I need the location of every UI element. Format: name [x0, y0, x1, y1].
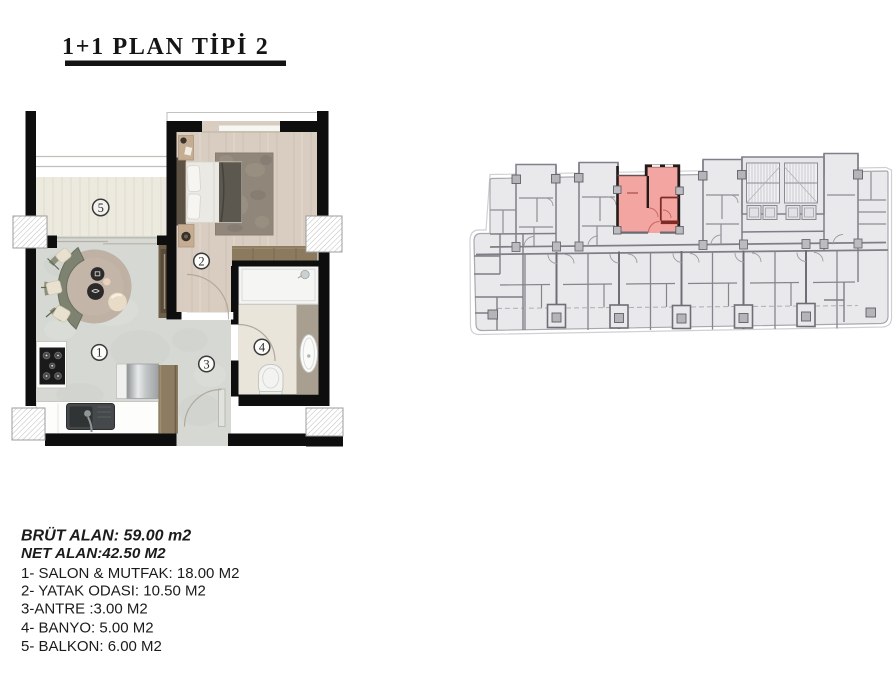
- svg-text:NET ALAN:42.50 M2: NET ALAN:42.50 M2: [21, 545, 166, 562]
- svg-text:5: 5: [98, 201, 104, 215]
- svg-text:BRÜT ALAN: 59.00 m2: BRÜT ALAN: 59.00 m2: [21, 526, 191, 545]
- svg-text:2- YATAK ODASI: 10.50 M2: 2- YATAK ODASI: 10.50 M2: [21, 583, 206, 600]
- svg-text:3-ANTRE :3.00 M2: 3-ANTRE :3.00 M2: [21, 601, 148, 618]
- svg-text:1: 1: [96, 346, 102, 360]
- svg-text:4- BANYO: 5.00 M2: 4- BANYO: 5.00 M2: [21, 620, 154, 637]
- svg-text:3: 3: [203, 357, 209, 371]
- svg-text:2: 2: [198, 254, 204, 268]
- svg-text:4: 4: [259, 340, 266, 354]
- svg-text:1+1 PLAN TİPİ 2: 1+1 PLAN TİPİ 2: [62, 34, 269, 60]
- svg-text:1- SALON & MUTFAK: 18.00 M2: 1- SALON & MUTFAK: 18.00 M2: [21, 565, 239, 582]
- svg-text:5- BALKON: 6.00 M2: 5- BALKON: 6.00 M2: [21, 638, 162, 655]
